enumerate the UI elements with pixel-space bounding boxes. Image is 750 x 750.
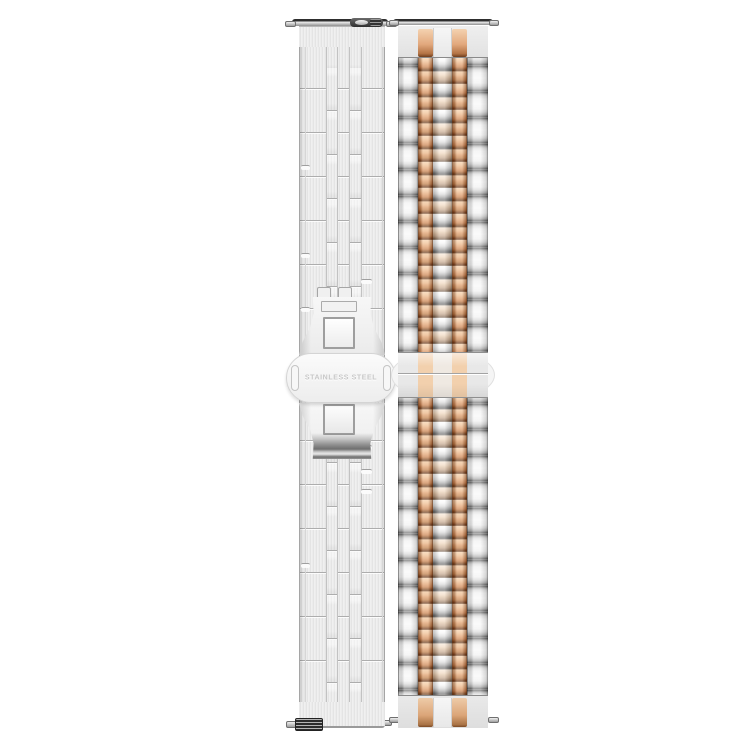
spring-bar-top-right-strap [393, 19, 493, 25]
link-pin-slot [301, 165, 310, 169]
link-pin-slot [361, 279, 372, 283]
end-link [299, 27, 385, 47]
clasp-seam [398, 373, 488, 375]
watch-strap-front-twotone [398, 26, 488, 728]
center-end-link [433, 28, 452, 57]
link-pin-slot [361, 469, 372, 473]
rose-gold-end-link [418, 698, 433, 727]
watch-strap-back-silver: STAINLESS STEEL [299, 26, 385, 728]
link-pin-slot [361, 489, 372, 493]
end-link [398, 695, 488, 728]
spring-coil [370, 19, 381, 26]
link-pin-slot [301, 253, 310, 257]
spring-bar-pin [285, 21, 296, 27]
clasp-fold-window [323, 404, 355, 435]
center-end-link [433, 698, 452, 727]
clasp-fold-bar [321, 301, 357, 312]
link-pin-slot [301, 307, 310, 311]
rose-gold-end-link [452, 29, 467, 57]
clasp-cover: STAINLESS STEEL [286, 353, 396, 403]
quick-release-knob [355, 20, 368, 25]
link-pin-slot [301, 563, 310, 567]
hidden-clasp-panel [398, 352, 488, 398]
product-image: STAINLESS STEEL [0, 0, 750, 750]
rose-gold-end-link [418, 29, 433, 57]
spring-bar-coil-bottom [295, 718, 323, 731]
end-link [398, 26, 488, 58]
quick-release-spring-bar [350, 18, 383, 27]
spring-bar-pin [488, 717, 499, 723]
rose-gold-end-link [452, 698, 467, 727]
clasp-engraving: STAINLESS STEEL [287, 375, 395, 382]
clasp-fold-window [323, 317, 355, 349]
spring-bar-pin [489, 20, 499, 26]
